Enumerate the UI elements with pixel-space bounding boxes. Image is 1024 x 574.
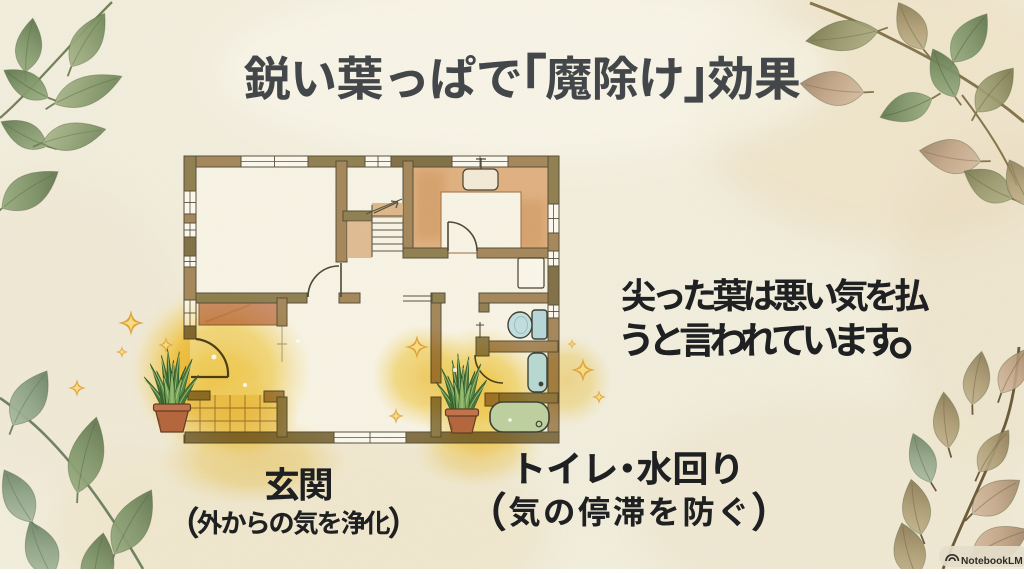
- svg-text:NotebookLM: NotebookLM: [961, 556, 1023, 567]
